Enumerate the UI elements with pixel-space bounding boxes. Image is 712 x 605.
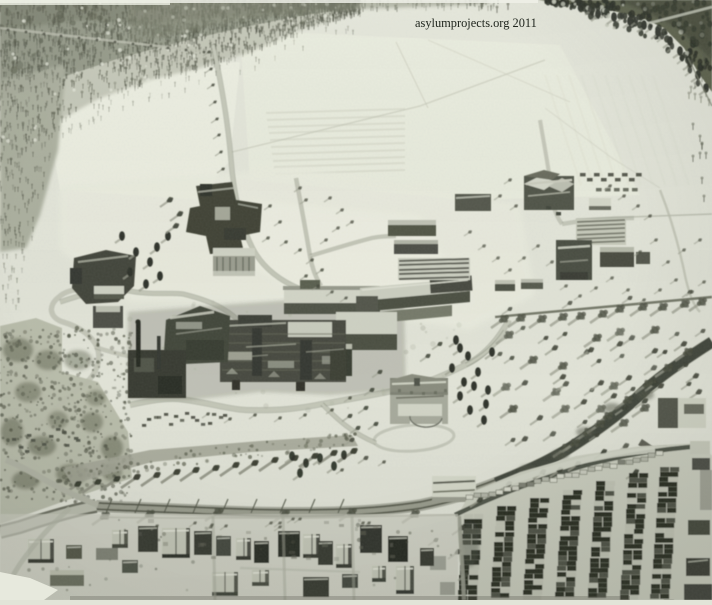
svg-text:asylumprojects.org 2011: asylumprojects.org 2011 (415, 16, 537, 30)
